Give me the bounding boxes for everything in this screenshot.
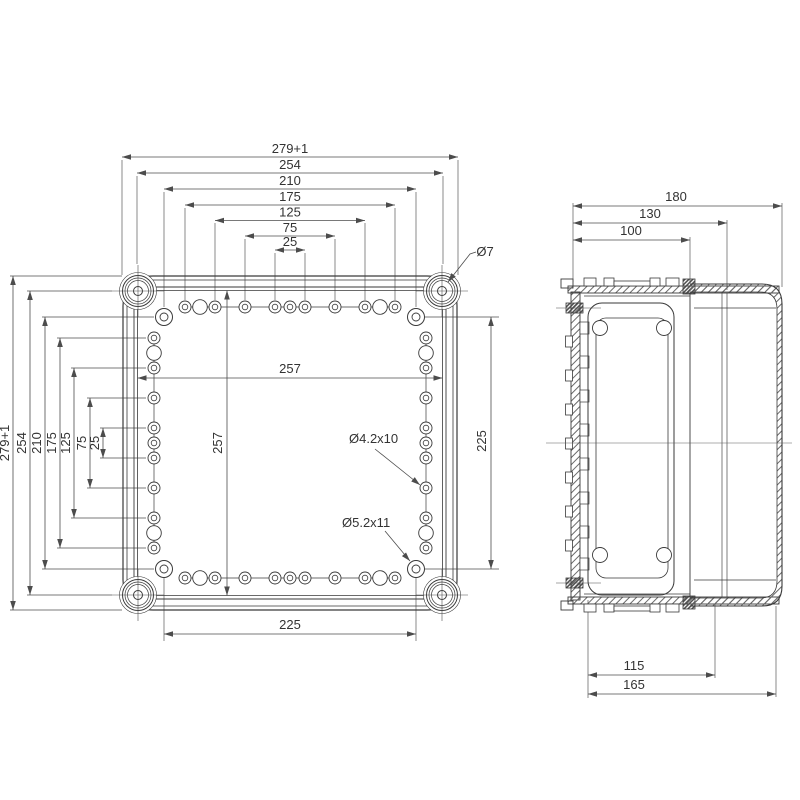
dim-arrow xyxy=(57,539,63,548)
plain-hole xyxy=(147,346,162,361)
latch-clip xyxy=(584,604,596,612)
enclosure-technical-drawing: 279+1 254 210 175 125 75 25 279+1 254 21… xyxy=(0,0,800,800)
dim-label-width-175: 175 xyxy=(279,189,301,204)
dim-arrow xyxy=(137,170,146,176)
latch-clip xyxy=(604,604,614,612)
mounting-hole xyxy=(148,437,160,449)
mounting-hole xyxy=(420,542,432,554)
extension-lines xyxy=(10,160,782,698)
latch-clip xyxy=(584,278,596,286)
panel-screw-hole xyxy=(657,548,672,563)
dim-arrow xyxy=(27,291,33,300)
dim-arrow xyxy=(57,338,63,347)
dim-arrow xyxy=(588,672,597,678)
plain-hole xyxy=(147,526,162,541)
side-view-section xyxy=(546,278,792,612)
dim-label-height-overall: 279+1 xyxy=(0,425,12,462)
front-view xyxy=(112,265,468,621)
dim-arrow xyxy=(326,233,335,239)
dim-arrow xyxy=(245,233,254,239)
dim-label-depth-100: 100 xyxy=(620,223,642,238)
large-hole-callout: Ø5.2x11 xyxy=(342,515,390,530)
mounting-hole xyxy=(209,572,221,584)
dim-label-width-25: 25 xyxy=(283,234,297,249)
dim-arrow xyxy=(434,375,443,381)
dim-arrow xyxy=(402,552,412,562)
panel-screw-hole xyxy=(593,548,608,563)
dim-label-depth-130: 130 xyxy=(639,206,661,221)
mounting-hole xyxy=(269,301,281,313)
dimension-lines xyxy=(10,154,782,697)
wall-tab xyxy=(566,506,573,517)
dim-arrow xyxy=(773,203,782,209)
dim-label-bottom-span: 225 xyxy=(279,617,301,632)
plain-hole xyxy=(193,571,208,586)
mounting-hole xyxy=(239,301,251,313)
dim-label-height-125: 125 xyxy=(58,432,73,454)
mounting-hole xyxy=(148,512,160,524)
mounting-hole xyxy=(420,422,432,434)
mounting-hole xyxy=(389,572,401,584)
dim-arrow xyxy=(718,220,727,226)
plain-hole xyxy=(373,300,388,315)
dim-label-width-125: 125 xyxy=(279,205,301,220)
mounting-hole xyxy=(420,452,432,464)
dim-arrow xyxy=(10,276,16,285)
dim-arrow xyxy=(573,237,582,243)
dim-label-depth-165: 165 xyxy=(623,677,645,692)
mounting-hole xyxy=(284,301,296,313)
mounting-hole xyxy=(179,572,191,584)
mounting-hole xyxy=(329,301,341,313)
dim-arrow xyxy=(488,560,494,569)
plain-hole xyxy=(373,571,388,586)
inner-boss-hole xyxy=(156,561,173,578)
dim-arrow xyxy=(42,560,48,569)
mounting-hole xyxy=(329,572,341,584)
drawing-canvas: 279+1 254 210 175 125 75 25 279+1 254 21… xyxy=(0,0,800,800)
dim-arrow xyxy=(10,601,16,610)
mounting-hole xyxy=(269,572,281,584)
mounting-hole xyxy=(359,572,371,584)
mounting-hole xyxy=(284,572,296,584)
mounting-hole xyxy=(299,572,311,584)
mounting-hole xyxy=(148,482,160,494)
dim-arrow xyxy=(767,691,776,697)
dim-arrow xyxy=(434,170,443,176)
latch-clip xyxy=(666,604,679,612)
mounting-hole xyxy=(420,392,432,404)
mounting-hole xyxy=(148,542,160,554)
mounting-hole xyxy=(148,422,160,434)
dim-arrow xyxy=(588,691,597,697)
dim-arrow xyxy=(164,631,173,637)
plain-hole xyxy=(419,346,434,361)
dim-arrow xyxy=(296,247,305,253)
dim-label-depth-180: 180 xyxy=(665,189,687,204)
panel-screw-hole xyxy=(593,321,608,336)
dim-arrow xyxy=(87,479,93,488)
dim-label-height-210: 210 xyxy=(29,432,44,454)
dim-label-inner-width: 257 xyxy=(279,361,301,376)
dim-arrow xyxy=(386,202,395,208)
dim-arrow xyxy=(356,218,365,224)
dim-arrow xyxy=(71,509,77,518)
mounting-hole xyxy=(420,512,432,524)
inner-panel-inner xyxy=(596,318,668,578)
wall-tab xyxy=(566,336,573,347)
wall-tab xyxy=(566,370,573,381)
mounting-hole xyxy=(359,301,371,313)
wall-tab xyxy=(566,404,573,415)
dim-arrow xyxy=(164,186,173,192)
dim-label-depth-115: 115 xyxy=(624,658,645,673)
dim-arrow xyxy=(706,672,715,678)
mounting-hole xyxy=(420,362,432,374)
dim-label-width-overall: 279+1 xyxy=(272,141,309,156)
dim-arrow xyxy=(42,317,48,326)
dim-arrow xyxy=(71,368,77,377)
mounting-hole xyxy=(148,392,160,404)
mounting-hole xyxy=(420,332,432,344)
wall-tab xyxy=(566,540,573,551)
dim-label-right-span: 225 xyxy=(474,430,489,452)
plain-hole xyxy=(193,300,208,315)
dim-label-height-25: 25 xyxy=(87,436,102,450)
inner-boss-hole xyxy=(408,309,425,326)
dim-arrow xyxy=(407,186,416,192)
dim-arrow xyxy=(138,375,147,381)
mounting-hole xyxy=(148,362,160,374)
dim-label-width-75: 75 xyxy=(283,220,297,235)
lid-seam-outer xyxy=(134,287,446,599)
plain-hole xyxy=(419,526,434,541)
dim-arrow xyxy=(573,220,582,226)
mounting-hole xyxy=(239,572,251,584)
dim-arrow xyxy=(488,317,494,326)
mounting-hole xyxy=(389,301,401,313)
mounting-hole xyxy=(179,301,191,313)
dim-label-width-254: 254 xyxy=(279,157,301,172)
dim-label-inner-height: 257 xyxy=(210,432,225,454)
mounting-hole xyxy=(420,482,432,494)
dim-arrow xyxy=(224,291,230,300)
lid-outer-shell xyxy=(690,284,782,606)
dim-arrow xyxy=(122,154,131,160)
latch-clip xyxy=(650,278,660,286)
latch-clip xyxy=(604,278,614,286)
lid-wall-hatch xyxy=(690,284,782,606)
latch-clip xyxy=(666,278,679,286)
mounting-hole xyxy=(420,437,432,449)
wall-tab xyxy=(566,438,573,449)
dim-label-width-210: 210 xyxy=(279,173,301,188)
mounting-hole xyxy=(209,301,221,313)
dim-arrow xyxy=(100,428,106,437)
corner-hole-callout: Ø7 xyxy=(476,244,493,259)
dim-arrow xyxy=(224,587,230,596)
dim-arrow xyxy=(215,218,224,224)
dim-arrow xyxy=(185,202,194,208)
dim-arrow xyxy=(407,631,416,637)
dim-arrow xyxy=(449,154,458,160)
dim-arrow xyxy=(681,237,690,243)
panel-screw-hole xyxy=(657,321,672,336)
mounting-hole xyxy=(148,332,160,344)
dim-arrow xyxy=(27,586,33,595)
dim-arrow xyxy=(87,398,93,407)
lid-inner-shell xyxy=(690,292,777,598)
mounting-hole xyxy=(299,301,311,313)
wall-tab xyxy=(566,472,573,483)
dim-label-height-175: 175 xyxy=(44,432,59,454)
inner-boss-hole xyxy=(156,309,173,326)
small-hole-callout: Ø4.2x10 xyxy=(349,431,398,446)
latch-clip xyxy=(650,604,660,612)
inner-boss-hole xyxy=(408,561,425,578)
enclosure-outer-edge xyxy=(123,276,457,610)
dim-label-height-254: 254 xyxy=(14,432,29,454)
mounting-hole xyxy=(148,452,160,464)
dim-arrow xyxy=(573,203,582,209)
